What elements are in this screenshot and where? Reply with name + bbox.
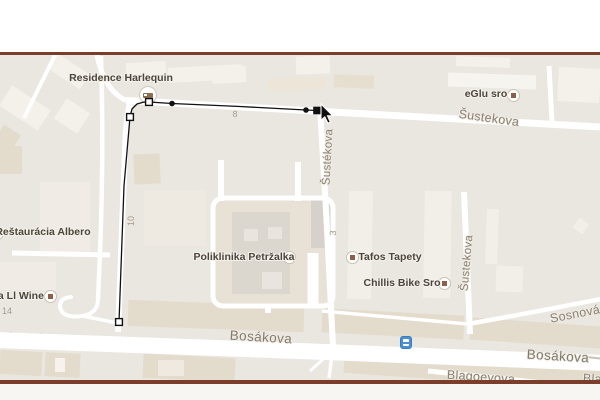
house-number-8: 8 [232,109,238,119]
map-border-top [0,52,600,55]
building [334,74,374,88]
poi-label-tafos-tapety[interactable]: Tafos Tapety [358,251,421,263]
building [212,66,247,84]
poi-label-ka-ll-wine[interactable]: ka Ll Wine [0,290,44,302]
lodging-poi[interactable] [139,86,157,104]
building [0,262,56,290]
dot-marker-icon [48,294,53,299]
house-number-14: 14 [2,306,12,316]
bus-icon-stripe [403,342,409,344]
dot-marker-icon [511,93,516,98]
building [244,229,258,241]
building [496,266,524,293]
building [311,200,332,248]
poi-label-residence-harlequin[interactable]: Residence Harlequin [69,72,173,84]
building [133,154,160,185]
dot-marker-icon [442,281,447,286]
poi-label-eglu-sro[interactable]: eGlu sro [465,88,508,100]
building [456,56,510,68]
poi-marker-eglu[interactable] [507,89,520,102]
page-background-top [0,0,600,52]
bed-pillow-icon [144,94,147,96]
building-albero [40,182,90,254]
building [55,358,65,372]
building [296,55,331,74]
building [144,190,206,246]
building [262,272,282,289]
building [0,146,22,174]
poi-label-restauracia-albero[interactable]: Reštaurácia Albero [0,226,91,238]
building [158,360,184,376]
dot-marker-icon [350,255,355,260]
building [0,350,43,376]
map-border-bottom [0,380,600,384]
poi-marker-tafos[interactable] [346,251,359,264]
page-background-bottom [0,384,600,400]
poi-label-poliklinika[interactable]: Poliklinika Petržalka [194,251,295,263]
bus-station-icon[interactable] [400,336,412,349]
poi-label-chillis-bike[interactable]: Chillis Bike Sro [363,277,440,289]
map-app-screenshot: Residence Harlequin eGlu sro Reštaurácia… [0,0,600,400]
building [268,227,282,239]
building [557,67,600,103]
poi-marker-wine[interactable] [44,290,57,303]
house-number-3: 3 [328,230,338,236]
building [142,354,235,383]
building [485,209,499,264]
house-number-10: 10 [126,216,136,226]
building [268,77,326,91]
